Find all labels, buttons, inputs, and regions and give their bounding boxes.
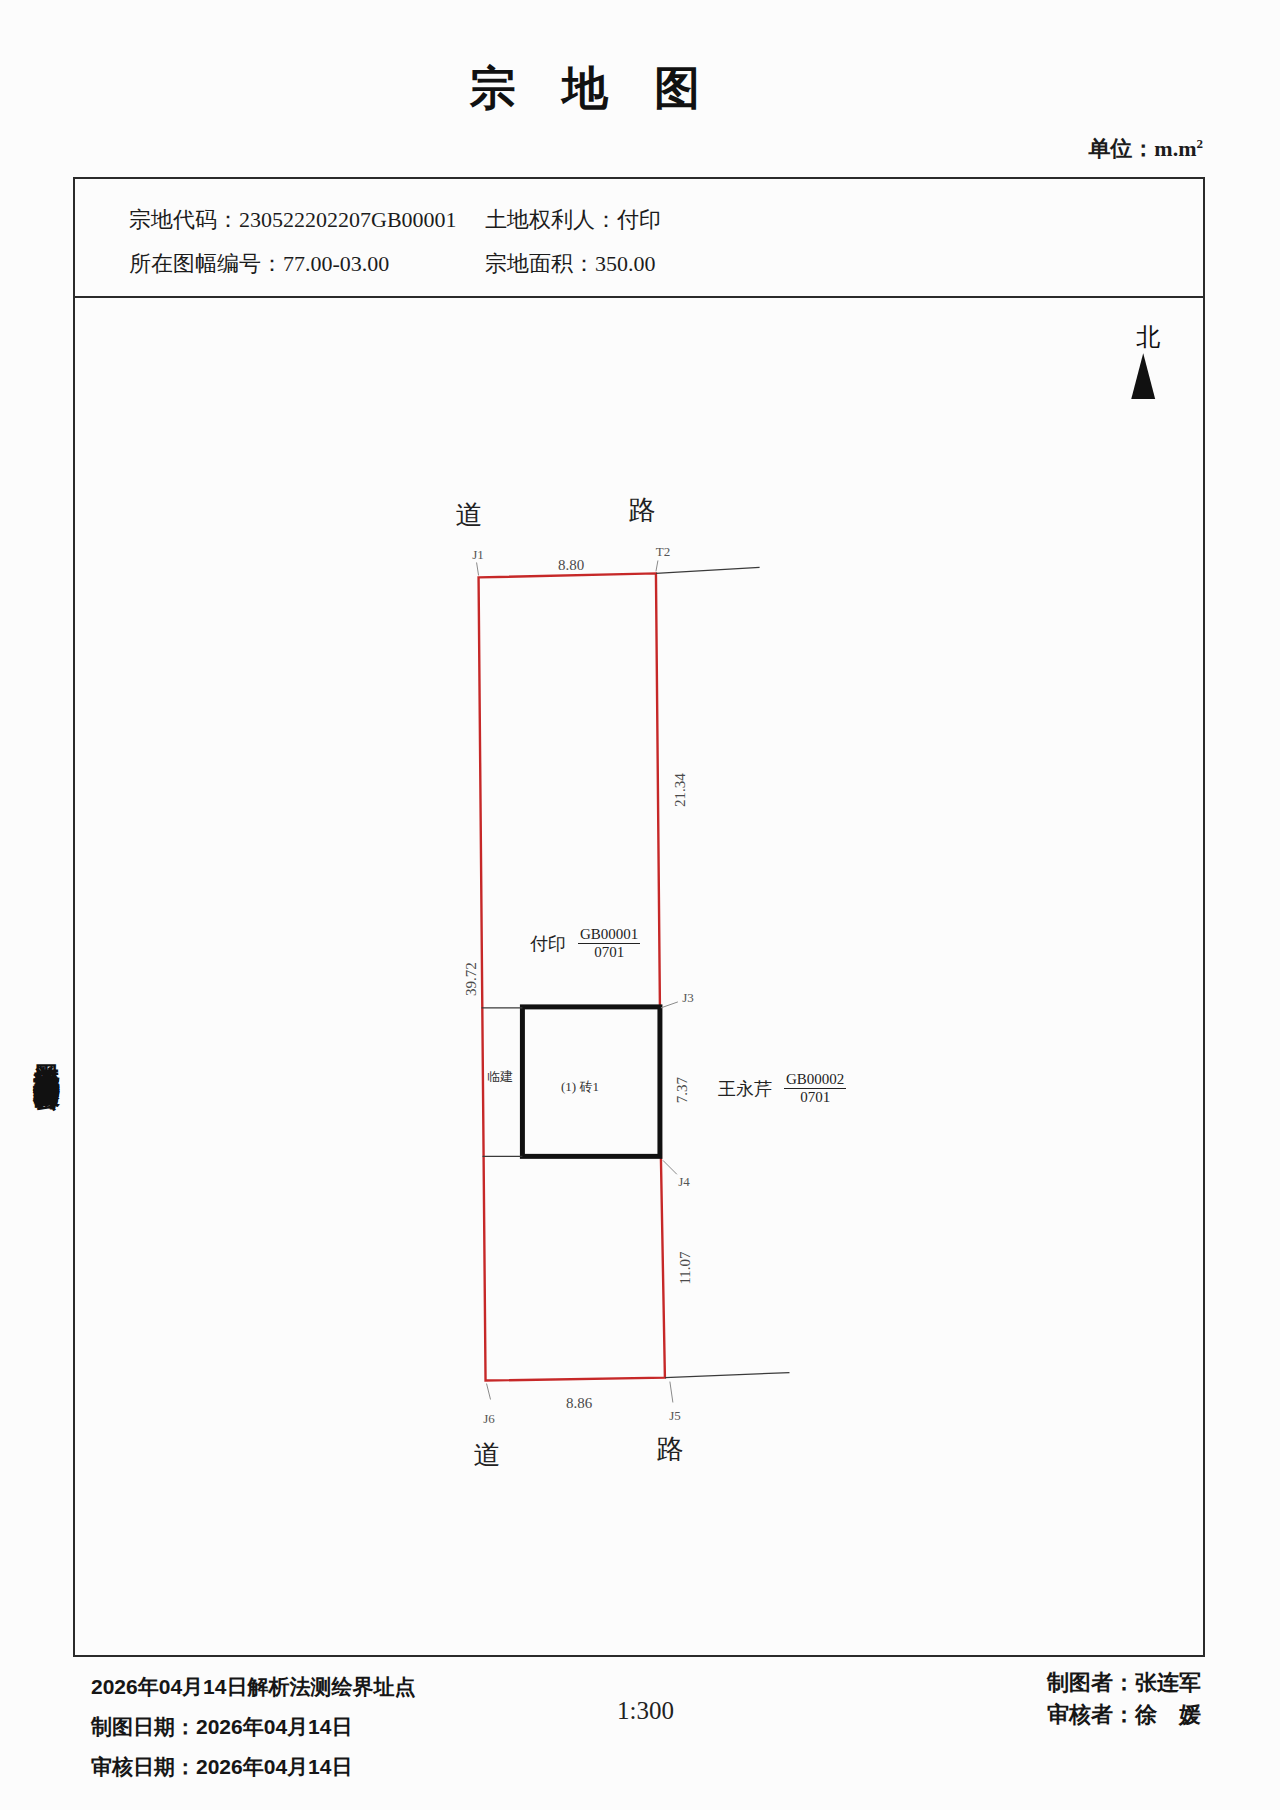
parcel-area-label: 宗地面积： <box>485 251 595 276</box>
building-label: (1) 砖1 <box>561 1078 599 1096</box>
point-label-j1: J1 <box>472 547 484 563</box>
survey-method-note: 2026年04月14日解析法测绘界址点 <box>91 1673 415 1701</box>
unit-superscript: 2 <box>1197 136 1204 151</box>
parcel-code-field: 宗地代码：230522202207GB00001 <box>129 205 457 235</box>
neighbor-owner-name: 王永芹 <box>718 1077 772 1101</box>
point-label-j6: J6 <box>483 1411 495 1427</box>
temp-building-label: 临建 <box>487 1068 513 1086</box>
review-date-label: 审核日期： <box>91 1755 196 1778</box>
dimension-top: 8.80 <box>558 557 584 574</box>
parcel-map-page: 宗 地 图 单位：m.m2 宗地代码：230522202207GB00001 土… <box>0 0 1280 1810</box>
dimension-right-upper: 21.34 <box>672 773 689 807</box>
neighbor-code-top: GB00002 <box>784 1071 846 1089</box>
draw-date-label: 制图日期： <box>91 1715 196 1738</box>
leader-j6 <box>487 1384 491 1400</box>
draw-date-line: 制图日期：2026年04月14日 <box>91 1713 352 1741</box>
unit-label: 单位：m.m2 <box>1088 134 1203 164</box>
leader-j4 <box>663 1160 677 1174</box>
neighbor-owner-annotation: 王永芹 GB00002 0701 <box>718 1071 846 1107</box>
road-label-bottom-left: 道 <box>474 1437 501 1473</box>
leader-j1 <box>477 562 479 575</box>
reviewer-line: 审核者：徐 媛 <box>1047 1700 1201 1730</box>
road-edge-line-bottom <box>665 1373 790 1378</box>
review-date-line: 审核日期：2026年04月14日 <box>91 1753 352 1781</box>
draw-date-value: 2026年04月14日 <box>196 1715 352 1738</box>
parcel-code-bottom: 0701 <box>578 944 640 961</box>
dimension-right-lower: 11.07 <box>677 1251 694 1284</box>
rights-holder-label: 土地权利人： <box>485 207 617 232</box>
north-arrow-icon <box>1131 353 1155 399</box>
drafter-line: 制图者：张连军 <box>1047 1668 1201 1698</box>
sheet-number-field: 所在图幅编号：77.00-03.00 <box>129 249 389 279</box>
sheet-number-label: 所在图幅编号： <box>129 251 283 276</box>
parcel-code-top: GB00001 <box>578 926 640 944</box>
north-label: 北 <box>1136 321 1160 353</box>
dimension-bottom: 8.86 <box>566 1395 592 1412</box>
review-date-value: 2026年04月14日 <box>196 1755 352 1778</box>
leader-j5 <box>670 1382 673 1403</box>
neighbor-code-fraction: GB00002 0701 <box>784 1071 846 1107</box>
point-label-j5: J5 <box>669 1408 681 1424</box>
parcel-area-value: 350.00 <box>595 251 656 276</box>
road-label-bottom-right: 路 <box>657 1431 684 1467</box>
reviewer-name: 徐 媛 <box>1135 1702 1201 1727</box>
map-frame: 道 路 道 路 北 J1 T2 J3 J4 J5 J6 8.80 21.34 3… <box>73 298 1205 1657</box>
dimension-building-right: 7.37 <box>674 1077 691 1103</box>
sheet-number-value: 77.00-03.00 <box>283 251 389 276</box>
point-label-j4: J4 <box>678 1174 690 1190</box>
road-label-top-right: 路 <box>629 492 656 528</box>
unit-text: 单位：m.m <box>1088 136 1196 161</box>
neighbor-code-bottom: 0701 <box>784 1089 846 1106</box>
parcel-code-label: 宗地代码： <box>129 207 239 232</box>
parcel-info-box: 宗地代码：230522202207GB00001 土地权利人：付印 所在图幅编号… <box>73 177 1205 298</box>
road-label-top-left: 道 <box>456 497 483 533</box>
dimension-left: 39.72 <box>463 962 480 996</box>
drafter-name: 张连军 <box>1135 1670 1201 1695</box>
leader-j3 <box>661 1002 678 1008</box>
parcel-boundary <box>479 573 665 1380</box>
drafter-label: 制图者： <box>1047 1670 1135 1695</box>
parcel-owner-annotation: 付印 GB00001 0701 <box>530 926 640 962</box>
point-label-t2: T2 <box>656 544 670 560</box>
parcel-area-field: 宗地面积：350.00 <box>485 249 656 279</box>
company-name-vertical: 黑龙江兴华土地房地产资产评估测绘科技有限公司 <box>29 1044 64 1640</box>
road-edge-line-top <box>656 567 760 573</box>
parcel-owner-name: 付印 <box>530 932 566 956</box>
map-scale: 1:300 <box>617 1697 674 1725</box>
reviewer-label: 审核者： <box>1047 1702 1135 1727</box>
parcel-code-fraction: GB00001 0701 <box>578 926 640 962</box>
page-title: 宗 地 图 <box>470 58 700 120</box>
parcel-code-value: 230522202207GB00001 <box>239 207 457 232</box>
rights-holder-value: 付印 <box>617 207 661 232</box>
rights-holder-field: 土地权利人：付印 <box>485 205 661 235</box>
point-label-j3: J3 <box>682 990 694 1006</box>
leader-t2 <box>656 560 658 571</box>
